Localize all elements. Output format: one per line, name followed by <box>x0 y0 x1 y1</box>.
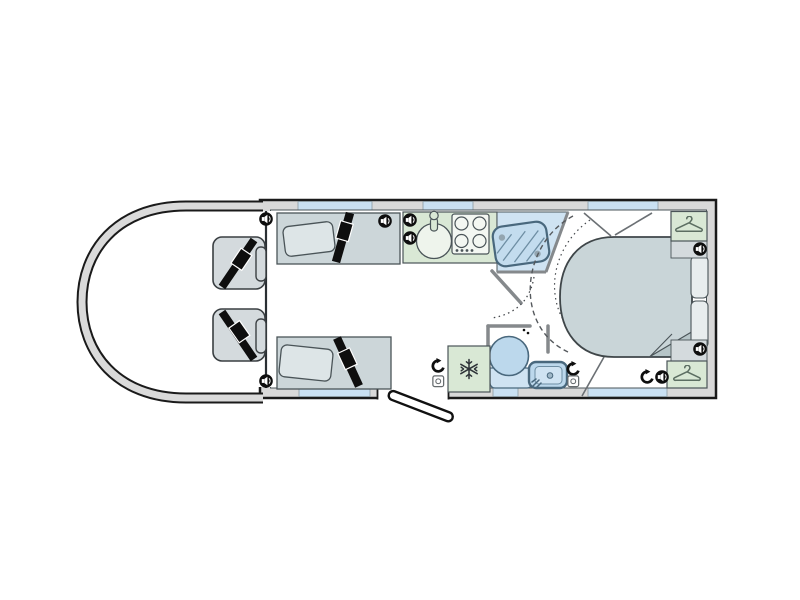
washbasin <box>529 362 567 388</box>
armrest <box>256 247 266 281</box>
armrest <box>256 319 266 353</box>
kitchen <box>403 211 497 263</box>
window-top-3 <box>588 202 658 211</box>
floorplan-canvas <box>0 0 800 600</box>
bedside-cabinet-top <box>691 256 708 298</box>
cab-seat-bottom <box>213 309 266 361</box>
pivot-dot <box>527 332 530 335</box>
pillow <box>282 221 335 257</box>
cab-nose-outline <box>82 206 263 398</box>
fridge <box>448 346 490 392</box>
floorplan-drawing <box>0 0 800 600</box>
plug-hole <box>547 373 553 379</box>
cab-seat-top <box>213 237 266 289</box>
bench-seat-bottom <box>277 337 391 389</box>
wardrobe-top <box>671 212 707 242</box>
window-bottom-2 <box>493 388 518 397</box>
pivot-dot <box>523 329 526 332</box>
speaker-icon <box>655 370 669 384</box>
speaker-icon <box>259 212 273 226</box>
tap-icon <box>430 211 438 231</box>
speaker-icon <box>259 374 273 388</box>
toilet <box>490 337 529 376</box>
shower-tray <box>491 220 550 267</box>
hob <box>452 214 489 254</box>
speaker-icon <box>693 242 707 256</box>
speaker-icon <box>403 231 417 245</box>
speaker-icon <box>693 342 707 356</box>
socket-icon <box>433 376 444 387</box>
pillow <box>278 344 333 381</box>
speaker-icon <box>403 213 417 227</box>
socket-icon <box>568 376 579 387</box>
speaker-icon <box>378 214 392 228</box>
window-top-2 <box>423 202 473 211</box>
window-top-1 <box>298 202 372 211</box>
window-bottom-3 <box>588 388 667 397</box>
